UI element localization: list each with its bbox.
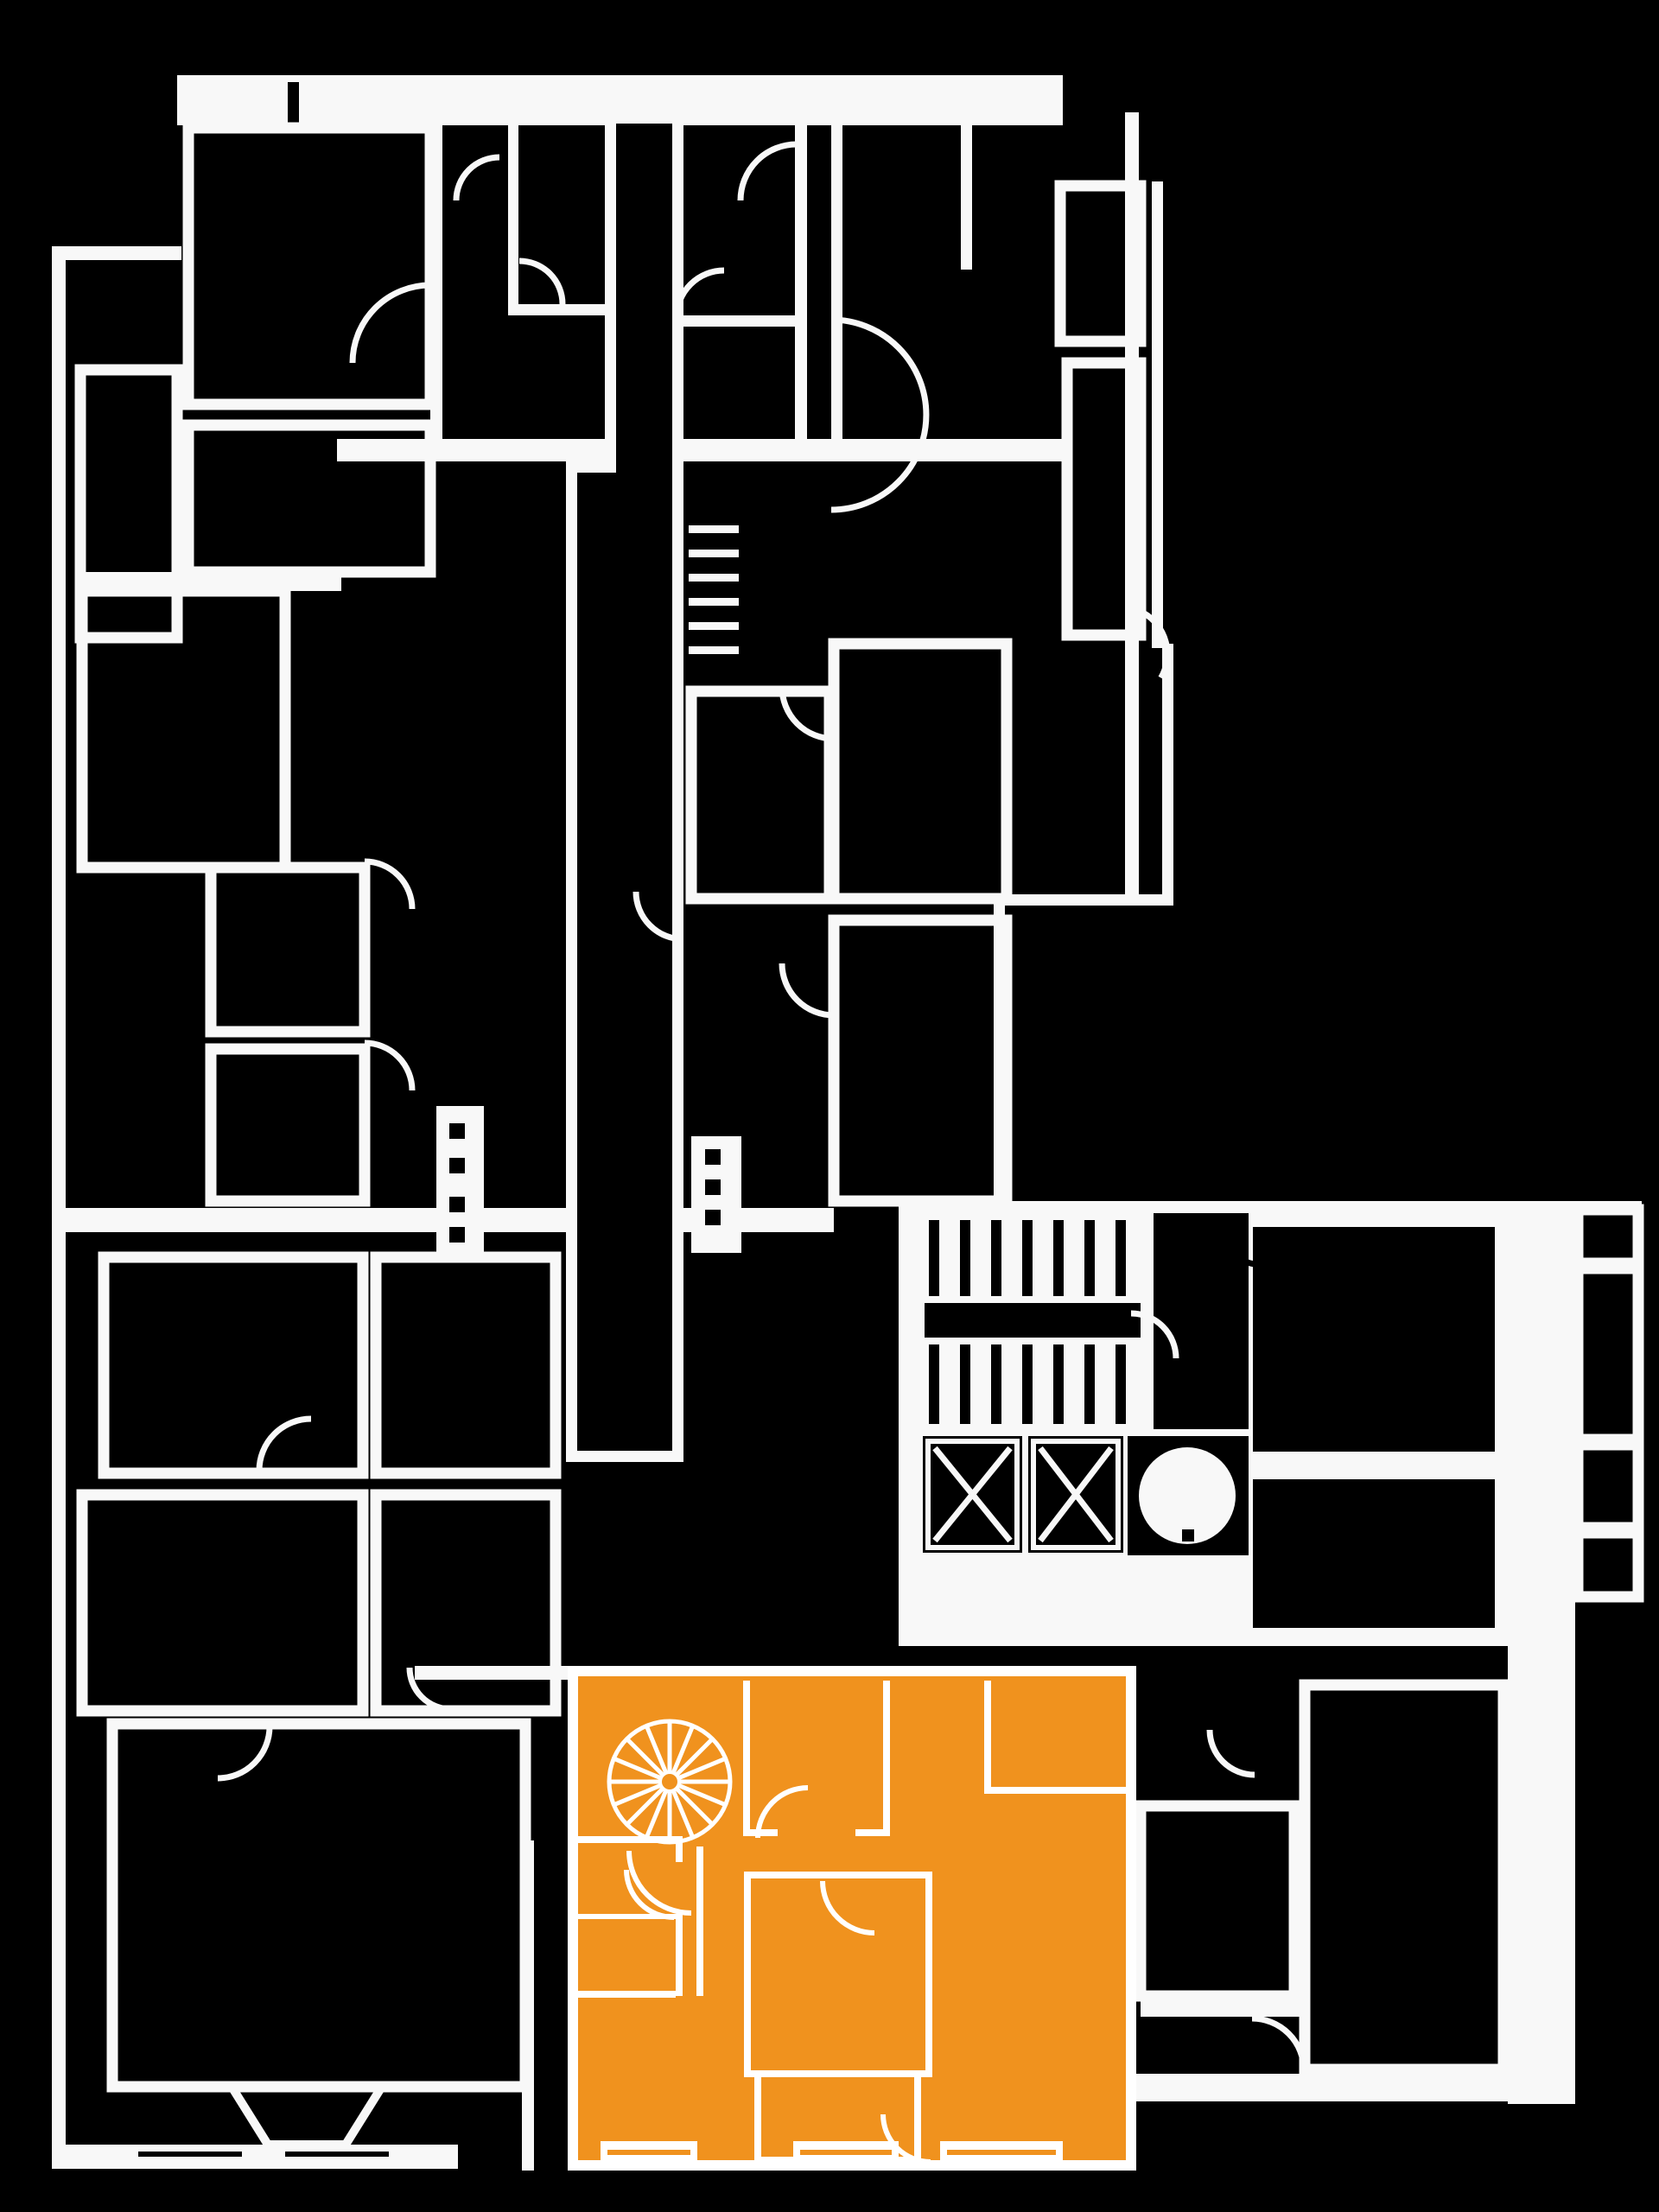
window-slit [138,2152,242,2157]
partition-4 [831,112,842,451]
unit-wall [676,1836,683,1862]
floor-plan-viewport [0,0,1659,2212]
top-outer-wall [177,75,1063,125]
top-wall-segment-a [508,304,616,315]
fixture-dot [449,1123,465,1139]
stair-treads-upper [1053,1220,1064,1296]
corridor-wall-jog [566,461,616,473]
unit-wall [984,1787,1129,1794]
window-slit [285,2152,389,2157]
fixture-dot [449,1197,465,1212]
stair-treads [689,622,739,630]
stair-treads-lower [1022,1344,1033,1424]
stair-treads-lower [1053,1344,1064,1424]
unit-window-slit [947,2150,1056,2155]
top-band-notch [288,82,299,125]
fixture-dot [705,1210,721,1225]
living-top-wall [415,1666,569,1680]
annex-link-wall-h [994,894,1173,906]
stair-treads-lower [960,1344,970,1424]
corridor-wall-bottom [566,1451,683,1462]
corridor-wall-left-lower [566,461,577,1462]
annex-lower-wall [1162,644,1173,899]
unit-wall [676,1914,683,1996]
stair-treads [689,525,739,533]
unit-wall [577,1836,676,1843]
stair-treads [689,598,739,606]
stair-treads-upper [1084,1220,1095,1296]
elevator-shaft-1 [923,1436,1022,1553]
unit-wall [855,1829,890,1836]
annex-outer-wall [1152,181,1163,648]
stair-treads [689,574,739,582]
stair-treads-lower [929,1344,939,1424]
east-room [1253,1479,1495,1628]
fixture-dot [449,1158,465,1173]
partition-3 [795,112,807,451]
unit-window-slit [800,2150,892,2155]
east-wing-core [899,1201,1508,1646]
elevator-shaft-2 [1028,1436,1123,1553]
top-wall-segment-b [683,315,798,327]
mid-wall-main [337,439,1067,461]
corridor-interior-upper [616,124,672,473]
left-outer-wall [52,246,66,2169]
stair-treads-lower [991,1344,1001,1424]
unit-wall [743,1681,750,1836]
bottom-left-outer-wall [52,2145,458,2169]
highlighted-unit[interactable] [568,1666,1136,2171]
corridor-interior-lower [577,473,672,1451]
unit-window-slit [607,2150,690,2155]
east-room [1154,1213,1249,1429]
unit-wall [984,1681,991,1793]
floor-plan-svg [0,0,1659,2212]
fixture-dot [705,1149,721,1165]
partition-5 [961,112,972,270]
right-corridor-band [1508,1201,1575,2104]
stair-treads-upper [1116,1220,1126,1296]
unit-wall [696,1847,703,1996]
east-room [1253,1227,1495,1452]
stair-treads-lower [1116,1344,1126,1424]
stair-treads [689,646,739,654]
corridor-wall-left-upper [605,112,616,473]
stair-treads-upper [929,1220,939,1296]
stair-treads-upper [960,1220,970,1296]
left-top-step-wall [52,246,181,260]
stair-landing [925,1303,1141,1338]
fixture-dot [705,1179,721,1195]
fixture-dot [449,1227,465,1243]
stair-treads-upper [1022,1220,1033,1296]
unit-wall [883,1681,890,1836]
stair-treads [689,550,739,557]
stair-treads-lower [1084,1344,1095,1424]
round-lift-notch [1182,1529,1194,1541]
unit-wall [577,1991,676,1998]
stair-treads-upper [991,1220,1001,1296]
se-bottom-wall [1136,2074,1575,2101]
partition-2 [508,112,518,309]
